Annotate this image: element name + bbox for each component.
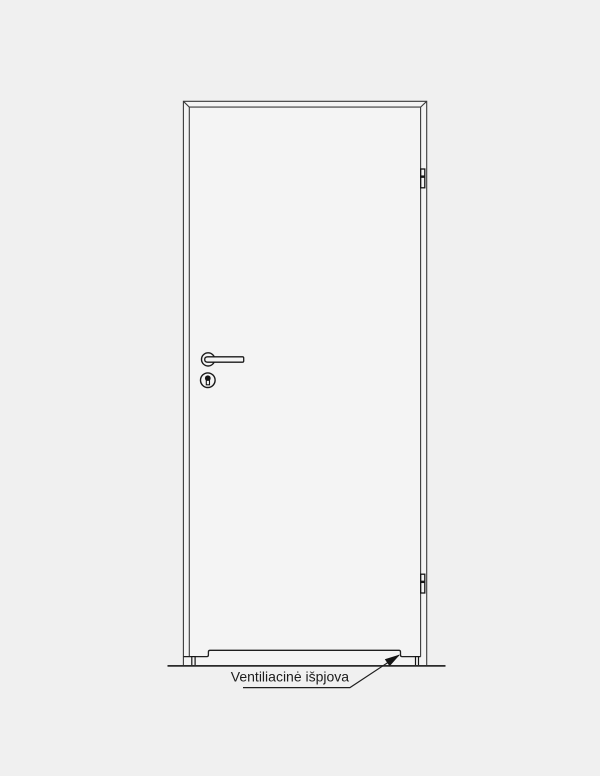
svg-text:Ventiliacinė išpjova: Ventiliacinė išpjova [231,669,350,685]
